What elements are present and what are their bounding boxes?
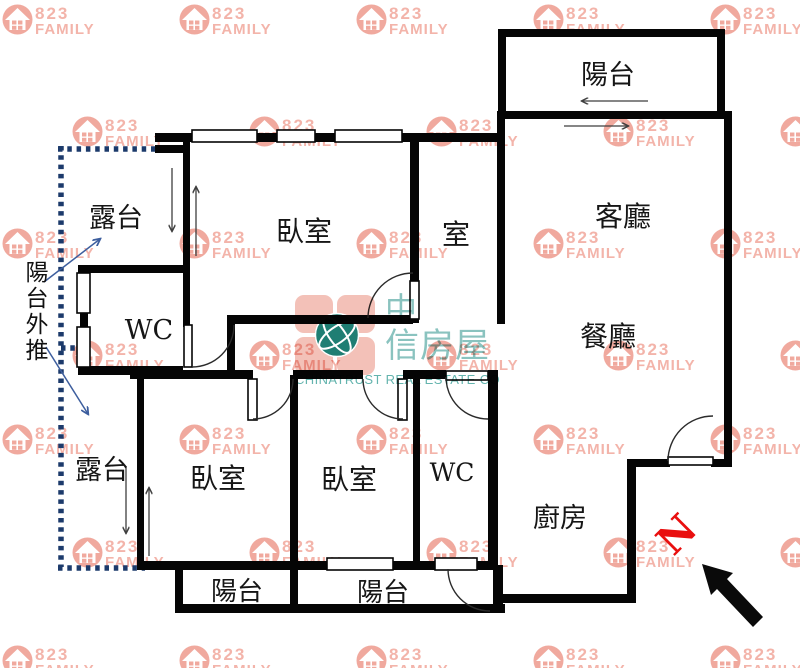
north-arrow [702, 564, 763, 627]
wall [393, 561, 435, 570]
wall [711, 459, 732, 467]
wall [498, 29, 725, 37]
annotation-balcony-push-out: 陽台外推 [17, 260, 51, 364]
room-label-bedroom-bottom-middle: 臥室 [289, 458, 409, 498]
wall [493, 565, 503, 613]
window [435, 558, 477, 570]
door-swing-arc [253, 379, 293, 419]
annotation-arrow [44, 239, 100, 282]
room-label-terrace-lower: 露台 [42, 448, 162, 487]
wall [130, 370, 253, 379]
wall [627, 459, 636, 602]
room-label-balcony-bottom-middle: 陽台 [323, 572, 443, 609]
floor-plan-image: 823 FAMILY [0, 0, 800, 668]
window [192, 130, 257, 142]
room-label-living-room: 客廳 [563, 195, 683, 235]
wall [717, 29, 725, 119]
wall [137, 561, 327, 570]
room-label-bedroom-bottom-left: 臥室 [158, 457, 278, 497]
window [277, 130, 315, 142]
door-leaf [248, 379, 257, 420]
room-label-kitchen: 廚房 [500, 496, 620, 535]
logo-cjk-first: 中 [385, 293, 417, 325]
door-leaf [668, 457, 713, 465]
wall [183, 133, 190, 272]
wall [724, 111, 732, 467]
wall [498, 29, 506, 119]
wall [78, 265, 190, 273]
door-swing-arc [668, 416, 713, 461]
window [327, 558, 393, 570]
room-label-balcony-top: 陽台 [548, 53, 668, 92]
wall [498, 111, 732, 119]
room-label-dining-room: 餐廳 [548, 315, 668, 355]
wall [497, 594, 636, 603]
room-label-wc-upper: WC [89, 315, 209, 346]
logo-cjk-rest: 信房屋 [385, 329, 490, 363]
logo-latin-name: CHINATRUST REAL ESTATE CO [295, 372, 500, 387]
window [77, 273, 90, 313]
room-label-wc-lower: WC [392, 458, 512, 487]
globe-icon [312, 310, 362, 360]
chinatrust-logo: 中 信房屋 CHINATRUST REAL ESTATE CO [291, 291, 503, 391]
room-label-terrace-upper: 露台 [56, 196, 176, 235]
window [335, 130, 402, 142]
room-label-balcony-bottom-left: 陽台 [177, 571, 297, 608]
room-label-small-room: 室 [396, 213, 516, 253]
room-label-bedroom-top: 臥室 [244, 210, 364, 250]
